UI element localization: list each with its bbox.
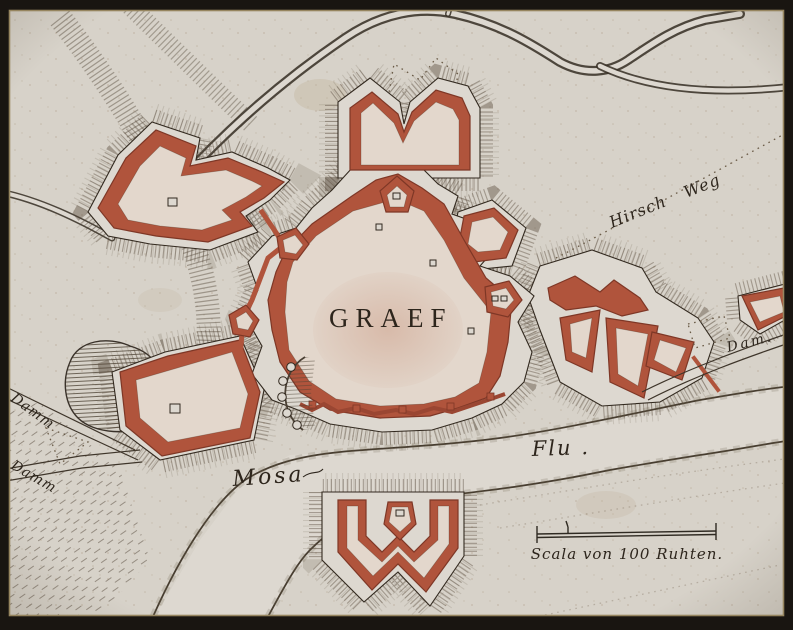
vignette — [0, 0, 793, 630]
fortification-map: GRAEF Hirsch Weg Dam. Damm Damm Mosa Flu… — [0, 0, 793, 630]
map-scan: GRAEF Hirsch Weg Dam. Damm Damm Mosa Flu… — [0, 0, 793, 630]
